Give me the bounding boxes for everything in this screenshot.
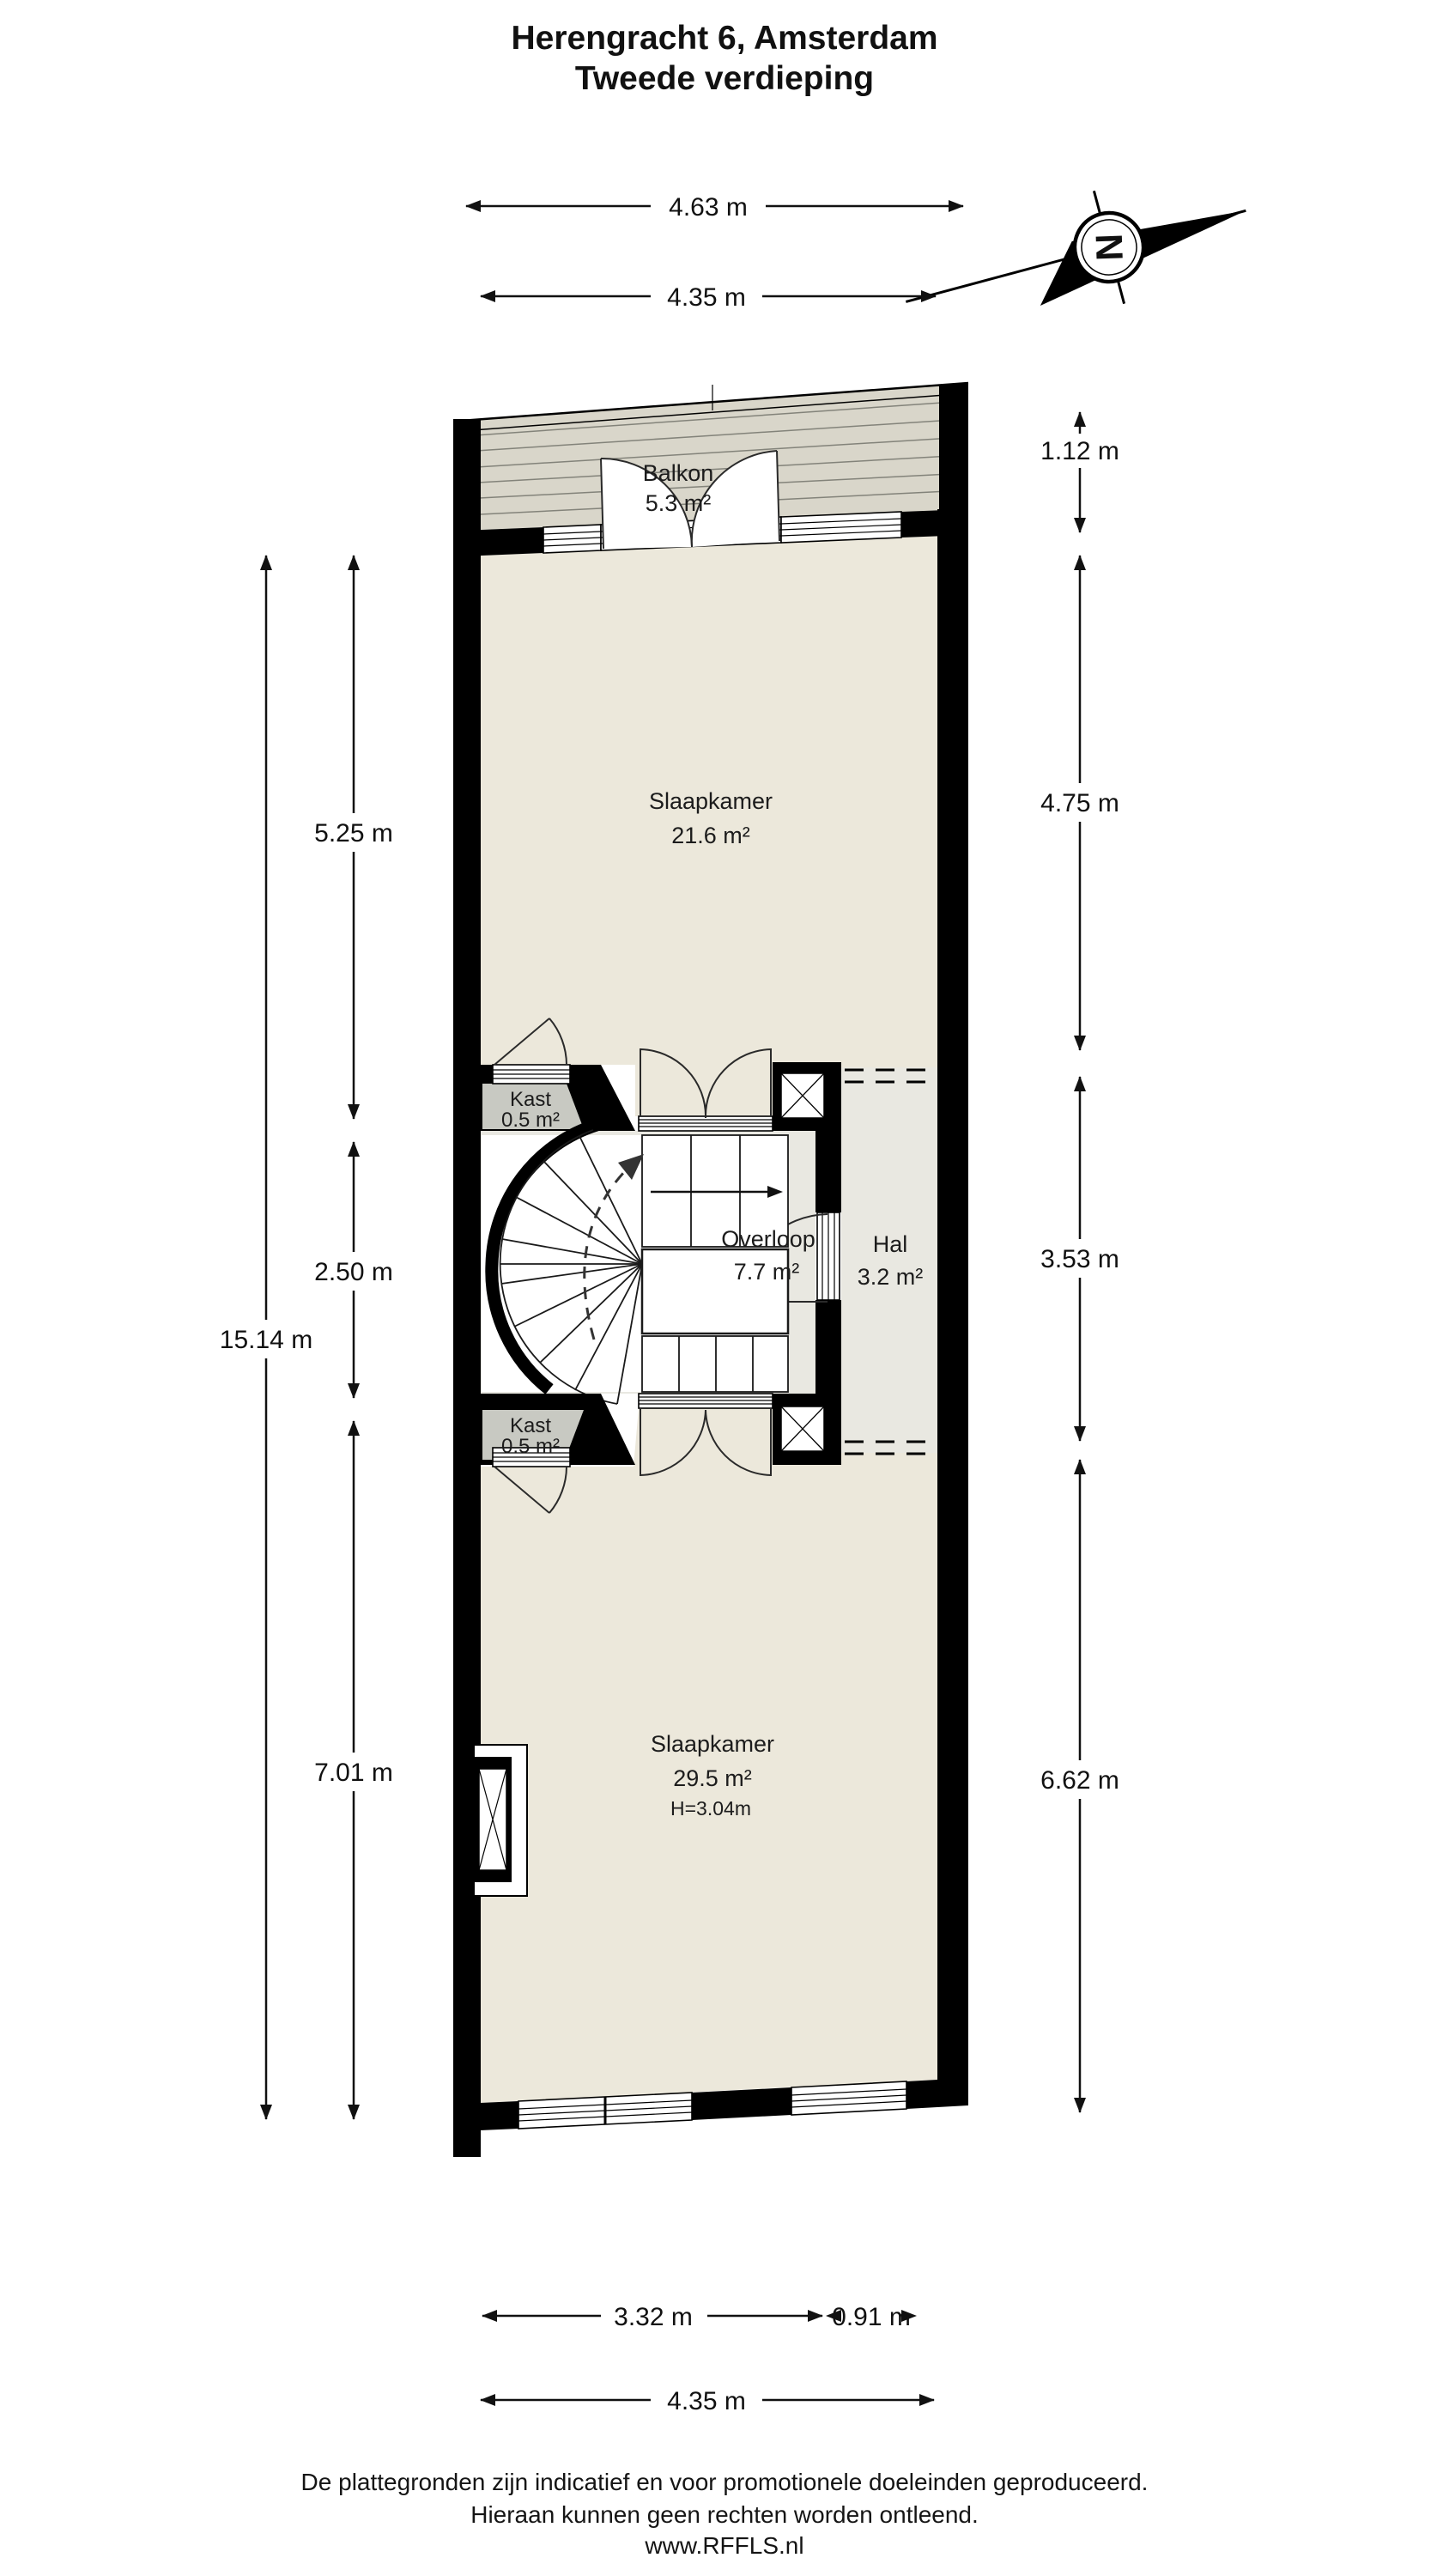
room-area-slaapkamer2: 29.5 m² <box>673 1765 752 1791</box>
page-title: Herengracht 6, Amsterdam <box>511 20 937 57</box>
footer-line1: De plattegronden zijn indicatief en voor… <box>301 2469 1149 2495</box>
floor-plan-svg: Herengracht 6, Amsterdam Tweede verdiepi… <box>0 0 1449 2576</box>
room-area-overloop: 7.7 m² <box>734 1259 800 1285</box>
room-area-balkon: 5.3 m² <box>646 490 712 516</box>
room-label-overloop: Overloop <box>721 1226 815 1252</box>
dim-left-total: 15.14 m <box>220 1326 312 1354</box>
footer-line2: Hieraan kunnen geen rechten worden ontle… <box>470 2501 979 2528</box>
balcony-right-wall <box>939 383 968 514</box>
dim-left-lower: 7.01 m <box>314 1759 393 1787</box>
dim-right-middle: 3.53 m <box>1040 1245 1119 1273</box>
room-label-kast2: Kast <box>510 1414 551 1437</box>
room-height-slaapkamer2: H=3.04m <box>670 1797 751 1820</box>
chimney-flue <box>474 1745 527 1896</box>
dim-right-upper: 4.75 m <box>1040 789 1119 817</box>
dim-right-lower: 6.62 m <box>1040 1766 1119 1795</box>
dim-top-inner: 4.35 m <box>667 283 746 312</box>
north-compass-icon: N <box>891 155 1261 358</box>
room-label-kast1: Kast <box>510 1088 551 1111</box>
room-label-balkon: Balkon <box>643 460 714 486</box>
shaft-block-upper <box>773 1062 841 1131</box>
room-label-hal: Hal <box>873 1231 908 1257</box>
dim-bottom-small: 0.91 m <box>832 2303 911 2331</box>
footer-disclaimer: De plattegronden zijn indicatief en voor… <box>301 2469 1149 2559</box>
floor-plan-page: Herengracht 6, Amsterdam Tweede verdiepi… <box>0 0 1449 2576</box>
dim-right-balcony: 1.12 m <box>1040 437 1119 465</box>
shaft-block-lower <box>773 1394 841 1465</box>
hal-floor <box>841 1067 937 1454</box>
footer-website: www.RFFLS.nl <box>644 2532 803 2559</box>
dim-left-upper: 5.25 m <box>314 819 393 848</box>
dim-left-middle: 2.50 m <box>314 1258 393 1286</box>
dim-bottom-main: 3.32 m <box>614 2303 693 2331</box>
dim-top-outer: 4.63 m <box>669 193 748 222</box>
room-label-slaapkamer1: Slaapkamer <box>649 788 773 814</box>
right-wall <box>937 509 968 2105</box>
page-subtitle: Tweede verdieping <box>575 60 874 97</box>
dim-bottom-total: 4.35 m <box>667 2387 746 2415</box>
room-area-kast1: 0.5 m² <box>501 1109 560 1132</box>
room-area-kast2: 0.5 m² <box>501 1435 560 1458</box>
room-area-slaapkamer1: 21.6 m² <box>671 823 750 848</box>
room-area-hal: 3.2 m² <box>858 1264 924 1290</box>
room-label-slaapkamer2: Slaapkamer <box>651 1731 774 1757</box>
compass-north-label: N <box>1087 233 1130 261</box>
